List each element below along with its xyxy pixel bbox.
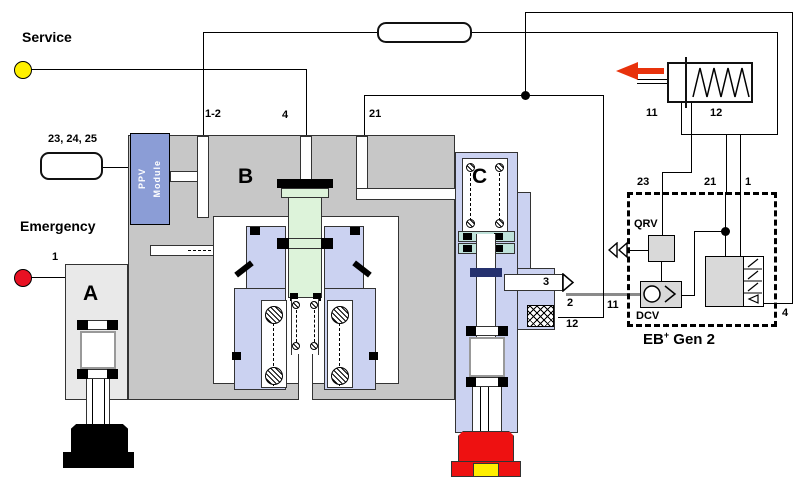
seal-b [369, 352, 378, 360]
qrv-label: QRV [634, 219, 658, 230]
piston-c [469, 337, 505, 377]
channel-port-21-h [356, 188, 466, 200]
pipe-h95 [364, 95, 604, 96]
c-rod-end-icon [466, 163, 475, 172]
pipe-junction-riser [525, 12, 526, 96]
eb-title-eb: EB [643, 331, 664, 348]
inlet-box [40, 152, 103, 180]
pneumatic-schematic: 23, 24, 25 Service Emergency 1 PPV Modul… [0, 0, 808, 495]
valve-port-4-label: 4 [282, 110, 288, 121]
stem-b-narrow [298, 354, 313, 400]
red-cap [458, 431, 514, 462]
emergency-port-icon [14, 269, 32, 287]
ppv-label-line1: PPV [136, 168, 149, 189]
inlet-box-label: 23, 24, 25 [48, 134, 97, 145]
stem-roller-icon [292, 342, 300, 350]
pipe-service-drop [306, 69, 307, 136]
service-port-icon [14, 61, 32, 79]
junction-dot-top [521, 91, 530, 100]
eb-title-rest: Gen 2 [669, 331, 715, 348]
pipe-emergency [31, 277, 68, 278]
seat-seal [463, 233, 472, 240]
c-rod-end-icon [466, 219, 475, 228]
spring-coil-icon [331, 367, 349, 385]
spring-coil-icon [265, 367, 283, 385]
dcv-valve [640, 281, 682, 308]
channel-port-12 [197, 136, 209, 218]
seal-a [77, 369, 88, 379]
emergency-label: Emergency [20, 219, 95, 233]
section-b-label: B [238, 166, 253, 187]
seal-a [107, 369, 118, 379]
actuator-port-12-label: 12 [710, 108, 722, 119]
stem-roller-icon [310, 342, 318, 350]
sleeve-left-upper [246, 226, 286, 290]
seal-a [107, 320, 118, 330]
eb-port-4-label: 4 [782, 308, 788, 319]
spring-coil-icon [331, 306, 349, 324]
pipe-actuator-23a [691, 100, 692, 173]
piston-top-seal [277, 179, 333, 188]
eb-gen2-title: EB+ Gen 2 [643, 331, 715, 347]
yellow-insert [473, 463, 499, 477]
black-cap-base [63, 452, 134, 468]
silencer-crosshatch [527, 305, 554, 327]
c-rod-line [499, 168, 500, 226]
pipe-top-second [203, 32, 778, 33]
stem-roller-icon [292, 301, 300, 309]
stem-c-lower [472, 387, 502, 432]
port-12-label: 12 [566, 319, 578, 330]
exhaust-icon [608, 242, 630, 259]
channel-port-4 [300, 136, 312, 183]
stem-a-line [104, 379, 105, 425]
sleeve-right-upper [324, 226, 364, 290]
section-a-label: A [83, 283, 98, 304]
pipe-port12b [558, 317, 604, 318]
stem-c [476, 234, 496, 340]
channel-port-21-v [356, 136, 368, 190]
piston-flange-seal [277, 238, 289, 249]
check-valve-glyphs-icon [744, 257, 762, 305]
pipe-port21-drop [364, 95, 365, 138]
actuator-rod [637, 79, 667, 80]
stem-c-line [480, 387, 481, 432]
stem-centerline [296, 310, 297, 342]
seat-seal [463, 245, 472, 252]
pipe-far-right [792, 12, 793, 304]
pipe-eb21 [726, 134, 727, 194]
pipe-right-drop [777, 32, 778, 135]
eb-port-1-label: 1 [745, 177, 751, 188]
seal-b [232, 352, 241, 360]
ppv-module: PPV Module [130, 133, 170, 225]
dcv-label: DCV [636, 311, 659, 322]
stem-roller-icon [310, 301, 318, 309]
c-rod-end-icon [495, 219, 504, 228]
seal-c [466, 326, 476, 336]
pipe-h134 [681, 134, 778, 135]
valve-port-12-label: 1-2 [205, 109, 221, 120]
seal-c [498, 326, 508, 336]
eb-port-23-label: 23 [637, 177, 649, 188]
ppv-label-line2: Module [151, 160, 164, 198]
pipe-port12-riser [203, 32, 204, 136]
pipe-actuator-11 [681, 100, 682, 135]
coupling-box-top [377, 22, 472, 43]
spring-icon [691, 64, 751, 101]
valve-port-21-label: 21 [369, 109, 381, 120]
actuator-rod [637, 83, 667, 84]
ecu-block [705, 256, 744, 307]
channel-ppv [170, 171, 198, 182]
pipe-service [31, 69, 307, 70]
seal-a [77, 320, 88, 330]
pipe-top-first [525, 12, 793, 13]
dcv-symbol-icon [641, 282, 680, 306]
check-valve-column [743, 256, 764, 307]
spring-coil-icon [265, 306, 283, 324]
qrv-valve [648, 235, 675, 262]
seal-b [350, 227, 360, 235]
seal-c [466, 377, 476, 387]
navy-seal [470, 268, 502, 277]
emergency-port-label: 1 [52, 252, 58, 263]
pipe-port12b-riser [603, 95, 604, 318]
stem-centerline [314, 310, 315, 342]
stem-a [86, 379, 110, 425]
stem-c-line [488, 387, 489, 432]
pipe-eb1 [740, 134, 741, 194]
eb-port-21-label: 21 [704, 177, 716, 188]
stem-a-line [92, 379, 93, 425]
piston-a [80, 331, 116, 369]
pipe-actuator-23b [662, 172, 692, 173]
release-arrow-icon [616, 62, 638, 80]
c-rod-end-icon [495, 163, 504, 172]
release-arrow-shaft [638, 68, 664, 74]
eb-port-11-label: 11 [607, 300, 619, 311]
black-cap [71, 424, 128, 453]
port-3-channel [504, 274, 563, 291]
seal-b [250, 227, 260, 235]
channel-a-b-dashed [188, 250, 216, 251]
actuator-divider [685, 57, 687, 108]
port-3-chevron-icon [562, 273, 575, 292]
piston-flange-seal [321, 238, 333, 249]
service-label: Service [22, 30, 72, 44]
actuator-port-11-label: 11 [646, 108, 658, 119]
port-2-label: 2 [567, 298, 573, 309]
seal-c [498, 377, 508, 387]
port-3-label: 3 [543, 277, 549, 288]
c-rod-line [470, 168, 471, 226]
